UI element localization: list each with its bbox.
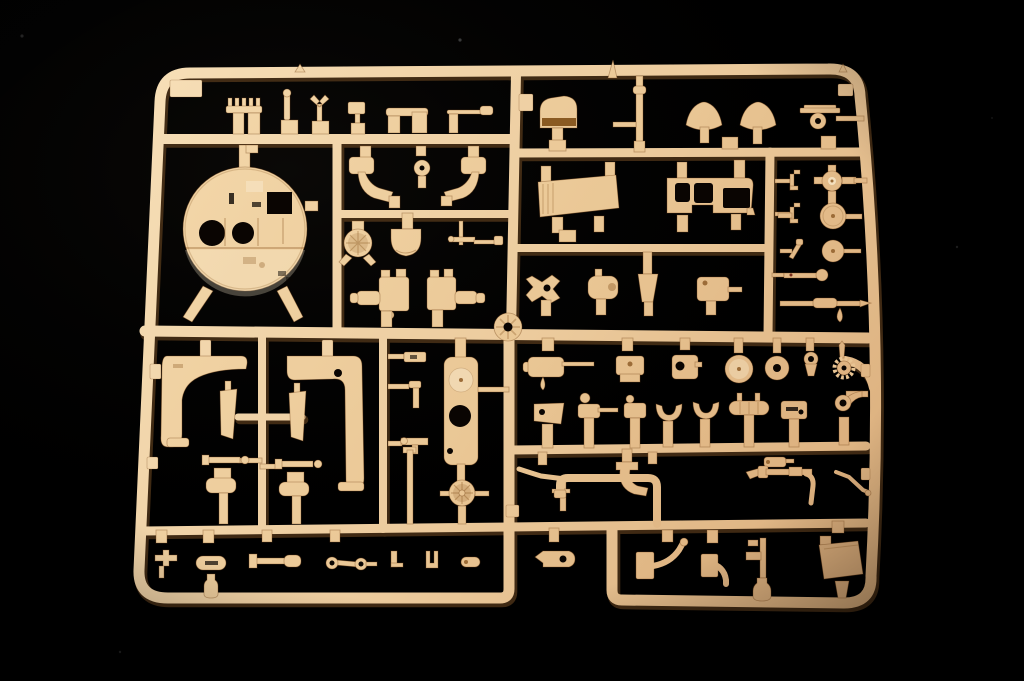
part-shape <box>351 123 365 134</box>
part-junction-hub <box>494 313 522 341</box>
part-shape <box>379 277 409 311</box>
part-shape <box>416 146 426 156</box>
part-shape <box>388 384 409 389</box>
part-shape <box>409 381 421 388</box>
part-shape <box>794 170 800 174</box>
part-shape <box>205 561 218 565</box>
part-shape <box>784 273 818 278</box>
part-shape <box>831 249 835 253</box>
part-shape <box>773 364 781 372</box>
part-shape <box>539 409 545 415</box>
part-shape <box>413 388 419 408</box>
part-shape <box>806 338 814 351</box>
dust-speck <box>991 117 993 119</box>
part-shape <box>676 362 685 371</box>
part-shape <box>458 506 466 524</box>
part-shape <box>202 455 209 465</box>
part-shape <box>349 157 374 174</box>
part-shape <box>560 556 567 563</box>
part-shape <box>389 196 400 208</box>
part-shape <box>262 530 272 542</box>
part-shape <box>643 252 652 274</box>
part-shape <box>252 202 261 207</box>
part-shape <box>794 203 800 207</box>
part-shape <box>350 293 358 303</box>
part-shape <box>401 438 408 445</box>
part-shape <box>449 114 458 133</box>
runner-v3 <box>768 152 770 336</box>
part-shape <box>559 230 576 242</box>
part-shape <box>412 112 427 133</box>
part-shape <box>281 120 298 134</box>
part-shape <box>737 393 742 401</box>
runner-h1r <box>514 152 862 153</box>
part-shape <box>790 186 798 190</box>
part-shape <box>840 400 847 407</box>
part-shape <box>865 490 871 496</box>
part-shape <box>330 561 335 566</box>
part-shape <box>680 538 688 546</box>
part-shape <box>246 145 258 153</box>
dust-speck <box>119 651 121 653</box>
part-shape <box>305 201 318 211</box>
part-shape <box>330 530 340 542</box>
part-shape <box>662 530 673 542</box>
part-shape <box>722 137 738 149</box>
part-shape <box>233 113 244 134</box>
part-shape <box>402 213 413 229</box>
sprue-tab <box>150 364 161 379</box>
part-shape <box>731 214 741 230</box>
part-shape <box>734 160 745 178</box>
part-shape <box>780 249 792 253</box>
part-shape <box>613 122 636 127</box>
part-shape <box>289 391 306 441</box>
part-shape <box>312 121 329 134</box>
part-shape <box>360 146 371 158</box>
part-shape <box>447 448 453 454</box>
sprue-photo <box>0 0 1024 681</box>
part-shape <box>580 393 590 403</box>
sprue-tab <box>170 80 202 97</box>
sprue-tab <box>519 94 533 111</box>
part-shape <box>734 338 743 353</box>
part-shape <box>468 146 479 158</box>
part-shape <box>248 113 260 134</box>
part-shape <box>622 338 633 351</box>
photo-stage <box>0 0 1024 681</box>
part-shape <box>562 362 594 366</box>
part-shape <box>626 395 634 403</box>
part-shape <box>208 457 240 463</box>
part-shape <box>219 493 228 524</box>
part-shape <box>528 357 564 377</box>
part-shape <box>624 403 646 418</box>
part-shape <box>821 136 836 149</box>
part-shape <box>432 310 443 327</box>
part-shape <box>697 277 729 301</box>
runner-h3 <box>512 446 866 450</box>
part-shape <box>706 301 716 315</box>
part-shape <box>790 219 798 223</box>
dust-speck <box>458 38 461 41</box>
part-shape <box>420 166 425 171</box>
part-shape <box>748 540 758 546</box>
dust-speck <box>20 34 23 37</box>
part-shape <box>677 215 688 232</box>
sprue-tab <box>861 468 870 480</box>
part-shape <box>249 554 257 568</box>
part-shape <box>314 460 322 468</box>
part-shape <box>455 291 477 304</box>
part-shape <box>663 421 673 447</box>
part-shape <box>542 338 554 351</box>
part-shape <box>447 110 485 114</box>
part-shape <box>808 356 814 362</box>
part-shape <box>241 456 249 464</box>
part-shape <box>622 449 632 462</box>
part-shape <box>281 461 313 467</box>
part-shape <box>633 86 646 94</box>
part-shape <box>159 566 164 578</box>
part-shape <box>494 236 503 245</box>
part-shape <box>226 106 262 113</box>
part-shape <box>464 560 468 564</box>
part-shape <box>284 555 301 567</box>
part-shape <box>789 467 802 476</box>
sprue-tab <box>200 340 211 358</box>
part-shape <box>737 367 741 371</box>
part-shape <box>772 273 784 277</box>
part-shape <box>843 249 861 253</box>
part-shape <box>541 166 551 182</box>
part-shape <box>755 393 760 401</box>
part-shape <box>480 106 493 115</box>
part-shape <box>334 369 342 377</box>
part-shape <box>842 366 847 371</box>
part-shape <box>584 418 594 448</box>
part-shape <box>816 269 828 281</box>
part-shape <box>549 528 559 542</box>
part-shape <box>775 179 790 183</box>
part-shape <box>778 213 792 218</box>
part-shape <box>578 404 600 418</box>
part-shape <box>608 283 616 291</box>
part-shape <box>790 274 793 277</box>
part-shape <box>598 408 618 412</box>
part-shape <box>243 257 256 264</box>
part-shape <box>554 490 566 498</box>
part-shape <box>845 214 862 219</box>
part-shape <box>441 196 452 206</box>
part-shape <box>796 239 803 245</box>
part-shape <box>477 387 509 392</box>
part-shape <box>199 220 225 246</box>
part-shape <box>407 450 413 524</box>
part-shape <box>388 354 404 359</box>
dust-speck <box>956 246 958 248</box>
part-shape <box>206 478 236 493</box>
part-shape <box>410 355 417 359</box>
sprue-tab <box>838 84 853 96</box>
part-shape <box>541 300 551 316</box>
part-shape <box>628 362 633 367</box>
part-shape <box>766 460 770 464</box>
part-shape <box>286 277 293 282</box>
part-shape <box>680 338 690 350</box>
part-shape <box>630 418 640 448</box>
part-shape <box>549 140 566 151</box>
sprue-tab <box>861 364 870 377</box>
part-shape <box>786 407 798 411</box>
part-shape <box>357 291 380 305</box>
part-shape <box>203 530 214 543</box>
part-shape <box>799 410 804 415</box>
part-shape <box>396 269 406 277</box>
part-shape <box>786 459 794 463</box>
part-shape <box>815 118 821 124</box>
part-shape <box>348 102 365 114</box>
part-shape <box>552 128 563 141</box>
part-shape <box>854 178 867 183</box>
sprue-tab <box>147 457 158 469</box>
part-shape <box>388 441 402 446</box>
part-shape <box>831 180 834 183</box>
part-shape <box>232 222 254 244</box>
part-shape <box>279 482 309 496</box>
part-shape <box>173 364 183 368</box>
part-shape <box>813 298 837 308</box>
part-shape <box>475 491 489 496</box>
part-shape <box>644 302 653 316</box>
part-shape <box>229 193 234 204</box>
part-shape <box>773 338 781 353</box>
part-shape <box>449 405 471 427</box>
part-shape <box>596 299 606 315</box>
part-shape <box>381 311 392 327</box>
sprue-tab <box>322 340 333 358</box>
runner-v2 <box>511 74 516 333</box>
part-shape <box>156 530 167 543</box>
part-shape <box>746 552 761 560</box>
part-shape <box>444 269 453 277</box>
part-shape <box>267 192 292 214</box>
part-shape <box>694 183 713 203</box>
part-shape <box>728 287 742 292</box>
part-shape <box>542 424 553 448</box>
part-shape <box>605 162 615 176</box>
part-shape <box>695 362 702 367</box>
part-shape <box>634 141 645 152</box>
part-shape <box>167 438 189 447</box>
part-shape <box>789 419 799 447</box>
part-shape <box>418 176 426 188</box>
part-shape <box>459 378 463 382</box>
part-shape <box>538 452 547 465</box>
part-shape <box>448 236 454 242</box>
part-shape <box>839 341 845 358</box>
part-shape <box>283 89 291 97</box>
part-shape <box>677 162 687 178</box>
part-shape <box>753 127 762 144</box>
part-shape <box>246 181 263 192</box>
part-shape <box>278 271 286 276</box>
part-shape <box>459 490 465 496</box>
part-shape <box>832 521 844 533</box>
part-shape <box>703 281 708 286</box>
part-shape <box>542 118 576 126</box>
part-shape <box>800 108 840 113</box>
part-capsule-pin <box>461 557 480 567</box>
part-shape <box>594 216 604 232</box>
part-shape <box>836 116 864 121</box>
part-shape <box>839 417 849 445</box>
part-shape <box>355 114 360 123</box>
part-shape <box>504 323 513 332</box>
part-shape <box>366 562 377 566</box>
part-shape <box>831 214 835 218</box>
part-shape <box>275 459 282 469</box>
part-shape <box>700 419 710 447</box>
part-shape <box>476 293 485 303</box>
part-shape <box>534 403 564 424</box>
part-shape <box>744 415 754 447</box>
part-shape <box>544 285 551 292</box>
part-shape <box>461 557 480 567</box>
sprue-tab <box>506 505 519 517</box>
part-shape <box>359 562 364 567</box>
part-shape <box>707 530 718 543</box>
part-shape <box>700 127 709 143</box>
part-shape <box>391 563 403 567</box>
part-shape <box>259 262 265 268</box>
part-shape <box>388 116 400 133</box>
part-shape <box>292 496 301 524</box>
part-shape <box>620 374 640 382</box>
part-shape <box>427 277 456 310</box>
part-shape <box>675 183 690 202</box>
part-shape <box>461 157 486 174</box>
part-shape <box>648 452 657 464</box>
part-shape <box>723 188 750 208</box>
part-shape <box>338 482 364 491</box>
